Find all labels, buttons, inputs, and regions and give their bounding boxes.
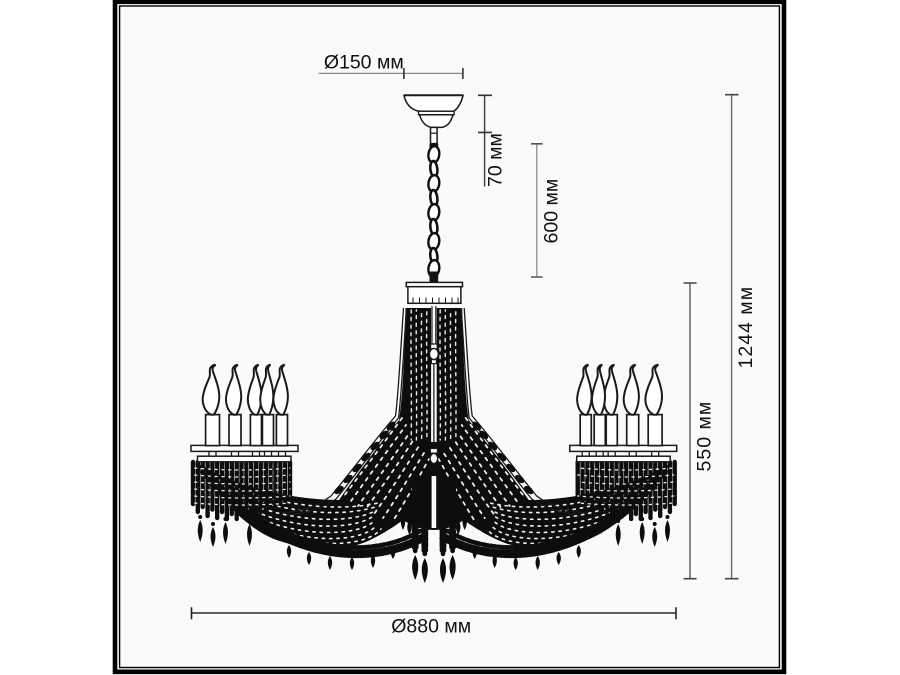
svg-text:600 мм: 600 мм <box>540 179 562 244</box>
svg-text:550 мм: 550 мм <box>694 401 716 472</box>
svg-text:70 мм: 70 мм <box>484 133 506 187</box>
svg-text:Ø880 мм: Ø880 мм <box>391 616 471 638</box>
svg-text:Ø150 мм: Ø150 мм <box>324 51 404 73</box>
svg-text:1244 мм: 1244 мм <box>735 286 757 369</box>
